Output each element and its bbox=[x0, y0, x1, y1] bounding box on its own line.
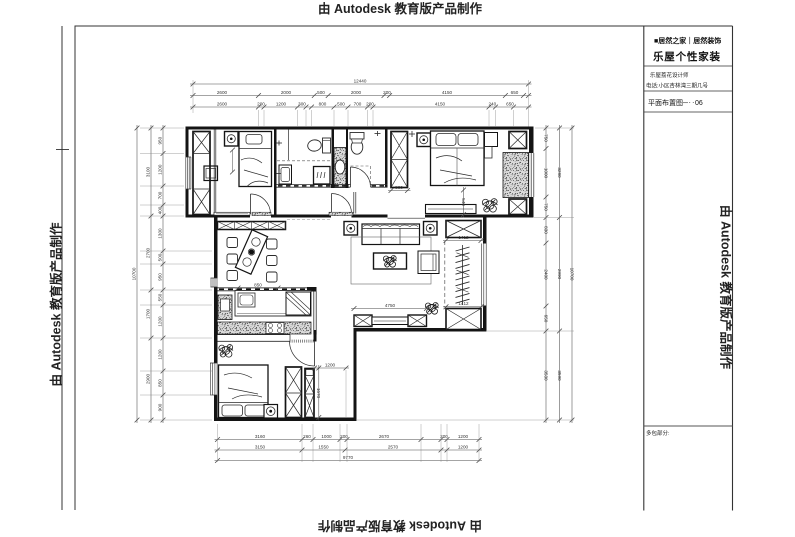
svg-text:2400: 2400 bbox=[543, 269, 548, 280]
svg-text:3150: 3150 bbox=[255, 444, 266, 449]
svg-text:1200: 1200 bbox=[325, 362, 336, 367]
svg-text:1200: 1200 bbox=[157, 316, 162, 327]
svg-text:500: 500 bbox=[337, 101, 345, 106]
svg-text:260: 260 bbox=[303, 434, 311, 439]
svg-text:1300: 1300 bbox=[157, 228, 162, 239]
svg-text:2990: 2990 bbox=[557, 269, 562, 280]
svg-text:700: 700 bbox=[157, 191, 162, 199]
svg-text:540: 540 bbox=[461, 198, 466, 206]
svg-text:平面布置图─‥06: 平面布置图─‥06 bbox=[648, 98, 703, 107]
svg-text:3160: 3160 bbox=[255, 434, 266, 439]
svg-text:由 Autodesk 教育版产品制作: 由 Autodesk 教育版产品制作 bbox=[49, 222, 64, 386]
svg-text:700: 700 bbox=[354, 101, 362, 106]
svg-text:9770: 9770 bbox=[343, 455, 354, 460]
svg-text:650: 650 bbox=[543, 315, 548, 323]
svg-text:1550: 1550 bbox=[318, 444, 329, 449]
svg-text:1000: 1000 bbox=[321, 434, 332, 439]
svg-text:1200: 1200 bbox=[157, 349, 162, 360]
svg-text:200: 200 bbox=[257, 101, 265, 106]
svg-text:2900: 2900 bbox=[145, 373, 150, 384]
svg-text:850: 850 bbox=[157, 379, 162, 387]
svg-text:3530: 3530 bbox=[543, 370, 548, 381]
svg-text:乐屋个性家装: 乐屋个性家装 bbox=[653, 50, 721, 63]
svg-text:950: 950 bbox=[157, 273, 162, 281]
svg-text:900: 900 bbox=[157, 403, 162, 411]
svg-text:3590: 3590 bbox=[557, 370, 562, 381]
svg-text:1200: 1200 bbox=[458, 434, 469, 439]
svg-text:500: 500 bbox=[157, 253, 162, 261]
svg-text:10700: 10700 bbox=[131, 267, 136, 280]
svg-text:800: 800 bbox=[395, 185, 403, 190]
svg-text:2700: 2700 bbox=[145, 247, 150, 258]
svg-text:4150: 4150 bbox=[442, 90, 453, 95]
svg-text:电话:小区杏林湾三期几号: 电话:小区杏林湾三期几号 bbox=[646, 82, 709, 90]
svg-text:1412: 1412 bbox=[458, 235, 469, 240]
svg-text:800: 800 bbox=[319, 101, 327, 106]
svg-text:500: 500 bbox=[317, 90, 325, 95]
svg-text:由 Autodesk 教育版产品制作: 由 Autodesk 教育版产品制作 bbox=[318, 1, 482, 16]
svg-text:2000: 2000 bbox=[351, 90, 362, 95]
svg-text:950: 950 bbox=[157, 136, 162, 144]
svg-text:由 Autodesk 教育版产品制作: 由 Autodesk 教育版产品制作 bbox=[318, 519, 482, 534]
svg-text:300: 300 bbox=[298, 101, 306, 106]
svg-text:多包部分:: 多包部分: bbox=[646, 429, 670, 437]
svg-text:1670: 1670 bbox=[316, 388, 321, 399]
svg-text:400: 400 bbox=[157, 206, 162, 214]
svg-text:2570: 2570 bbox=[388, 444, 399, 449]
svg-text:3100: 3100 bbox=[145, 166, 150, 177]
svg-text:2600: 2600 bbox=[217, 90, 228, 95]
svg-text:由 Autodesk 教育版产品制作: 由 Autodesk 教育版产品制作 bbox=[719, 205, 734, 369]
svg-text:■居然之家｜居然装饰: ■居然之家｜居然装饰 bbox=[654, 36, 721, 45]
svg-text:2600: 2600 bbox=[217, 101, 228, 106]
svg-text:2670: 2670 bbox=[379, 434, 390, 439]
svg-text:830: 830 bbox=[543, 226, 548, 234]
svg-text:1200: 1200 bbox=[276, 101, 287, 106]
svg-text:1700: 1700 bbox=[145, 308, 150, 319]
svg-text:3280: 3280 bbox=[557, 167, 562, 178]
svg-text:1200: 1200 bbox=[157, 164, 162, 175]
svg-text:10700: 10700 bbox=[569, 268, 574, 281]
svg-text:850: 850 bbox=[254, 282, 262, 287]
svg-text:200: 200 bbox=[366, 101, 374, 106]
svg-text:550: 550 bbox=[157, 293, 162, 301]
svg-text:650: 650 bbox=[506, 101, 514, 106]
svg-text:4750: 4750 bbox=[385, 303, 396, 308]
svg-text:2000: 2000 bbox=[281, 90, 292, 95]
svg-text:650: 650 bbox=[511, 90, 519, 95]
svg-text:1200: 1200 bbox=[458, 444, 469, 449]
svg-text:4150: 4150 bbox=[435, 101, 446, 106]
svg-text:750: 750 bbox=[543, 134, 548, 142]
svg-text:1412: 1412 bbox=[458, 301, 469, 306]
svg-text:乐屋荔花设计师: 乐屋荔花设计师 bbox=[650, 71, 689, 79]
svg-text:200: 200 bbox=[383, 90, 391, 95]
svg-text:240: 240 bbox=[488, 101, 496, 106]
svg-text:12440: 12440 bbox=[354, 78, 367, 83]
svg-text:750: 750 bbox=[543, 203, 548, 211]
svg-text:1000: 1000 bbox=[543, 168, 548, 179]
